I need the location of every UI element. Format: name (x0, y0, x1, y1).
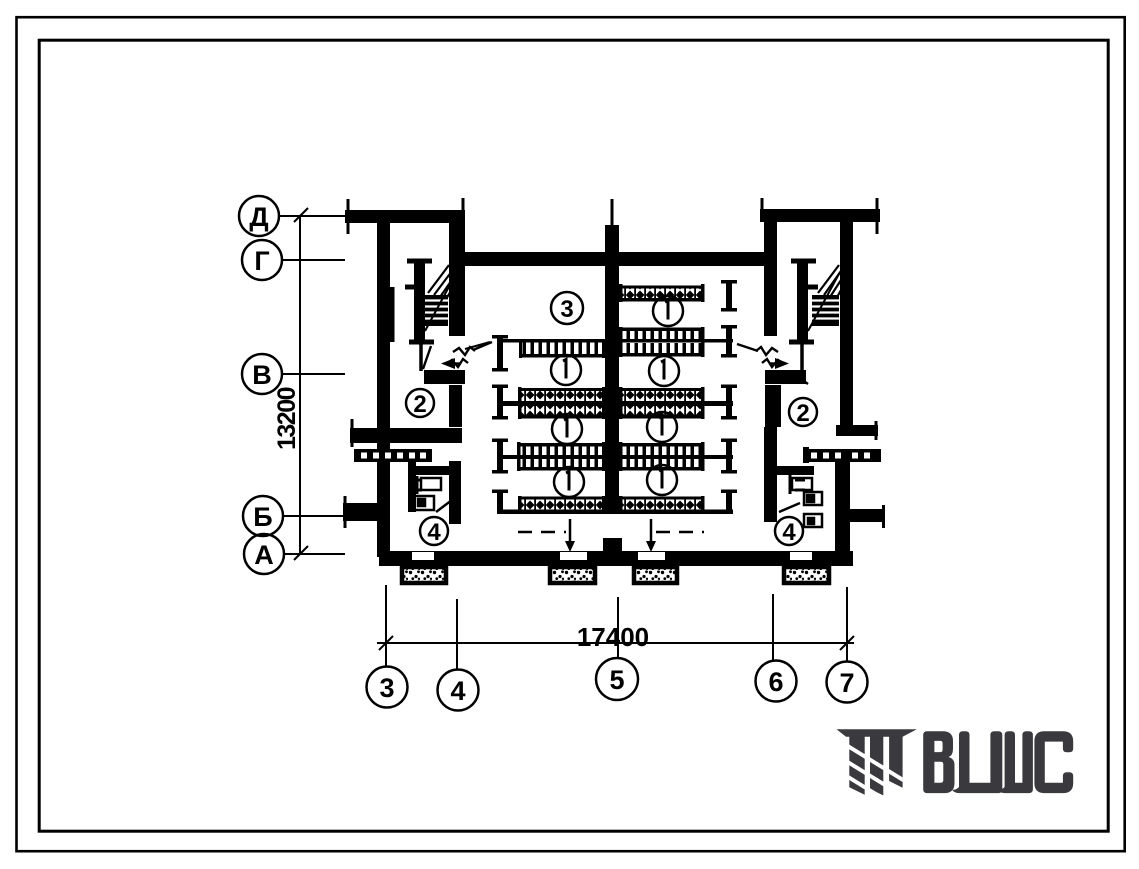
svg-text:2: 2 (796, 400, 809, 427)
svg-text:В: В (252, 360, 272, 390)
svg-text:4: 4 (427, 519, 441, 546)
svg-text:6: 6 (768, 667, 783, 697)
svg-text:2: 2 (413, 391, 426, 418)
svg-text:Д: Д (249, 202, 268, 232)
svg-text:3: 3 (379, 673, 394, 703)
svg-text:7: 7 (839, 668, 854, 698)
svg-text:Г: Г (254, 246, 269, 276)
svg-text:4: 4 (450, 676, 465, 706)
svg-text:3: 3 (560, 296, 573, 323)
svg-text:А: А (254, 540, 274, 570)
svg-text:13200: 13200 (273, 387, 301, 450)
svg-text:17400: 17400 (577, 622, 649, 652)
svg-text:Б: Б (253, 502, 272, 532)
svg-text:5: 5 (609, 665, 624, 695)
svg-text:4: 4 (782, 519, 796, 546)
